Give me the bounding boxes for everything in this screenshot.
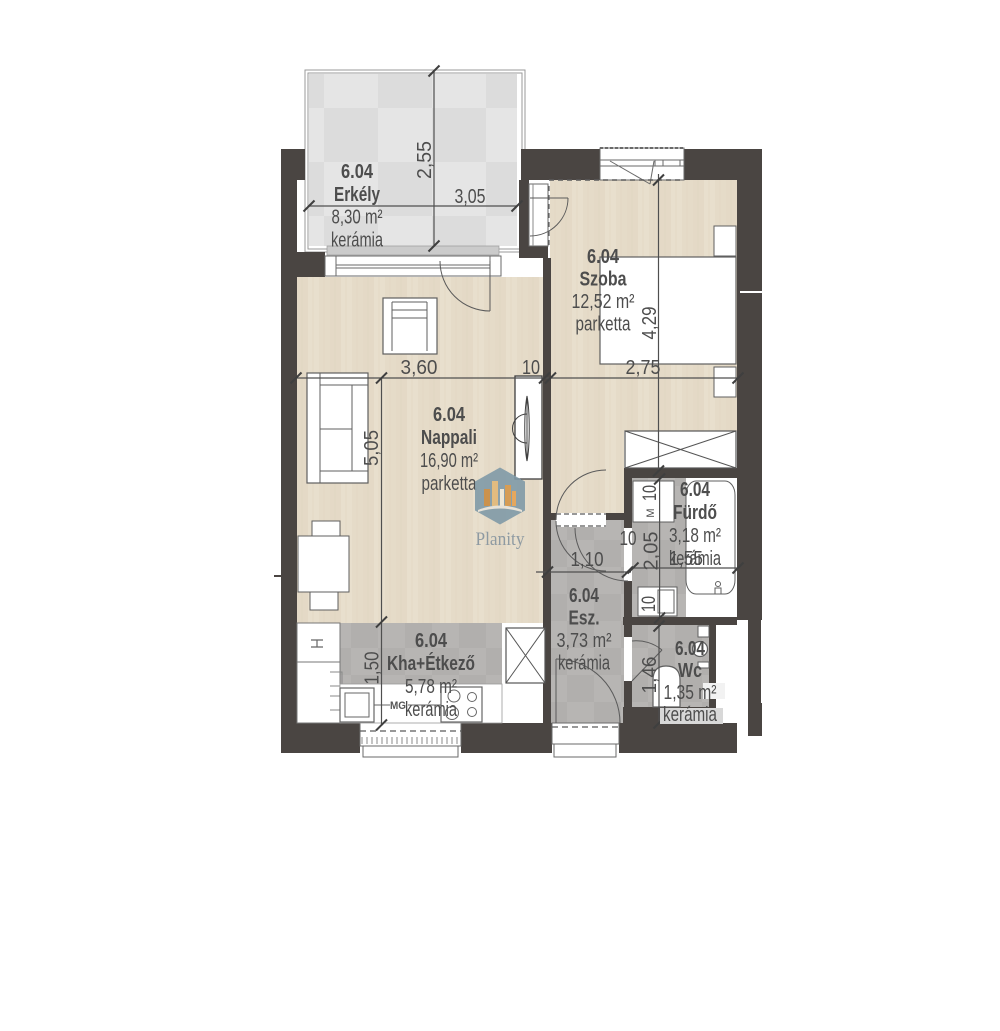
svg-text:2,55: 2,55: [414, 141, 436, 179]
svg-text:kerámia: kerámia: [663, 704, 718, 726]
svg-text:10: 10: [522, 357, 540, 379]
svg-text:3,60: 3,60: [401, 357, 438, 379]
svg-text:MG: MG: [390, 700, 406, 712]
svg-text:Fürdő: Fürdő: [673, 502, 717, 524]
svg-text:12,52 m²: 12,52 m²: [572, 291, 635, 313]
svg-text:3,18 m²: 3,18 m²: [669, 525, 721, 547]
svg-text:5,05: 5,05: [361, 430, 383, 466]
svg-text:6.04: 6.04: [569, 585, 600, 607]
svg-text:5,78 m²: 5,78 m²: [405, 676, 457, 698]
svg-text:Wc: Wc: [678, 660, 702, 682]
svg-text:kerámia: kerámia: [405, 699, 458, 721]
svg-text:3,05: 3,05: [455, 186, 486, 208]
svg-text:parketta: parketta: [422, 473, 478, 495]
svg-text:kerámia: kerámia: [331, 229, 384, 251]
svg-text:2,75: 2,75: [626, 357, 661, 379]
svg-text:1,50: 1,50: [362, 652, 384, 685]
svg-text:Erkély: Erkély: [334, 184, 381, 206]
svg-text:6.04: 6.04: [415, 630, 448, 652]
svg-text:Nappali: Nappali: [421, 427, 477, 449]
svg-text:1,35 m²: 1,35 m²: [664, 682, 717, 704]
svg-text:8,30 m²: 8,30 m²: [332, 207, 383, 229]
svg-text:Szoba: Szoba: [580, 269, 628, 291]
svg-text:6.04: 6.04: [587, 246, 620, 268]
svg-text:1,46: 1,46: [639, 657, 661, 694]
svg-text:16,90 m²: 16,90 m²: [420, 450, 478, 472]
svg-text:6.04: 6.04: [675, 638, 706, 660]
svg-text:Planity: Planity: [476, 529, 525, 550]
svg-text:kerámia: kerámia: [669, 548, 722, 570]
svg-text:parketta: parketta: [576, 314, 632, 336]
svg-text:10: 10: [620, 528, 637, 550]
svg-text:M: M: [645, 508, 657, 517]
svg-text:Esz.: Esz.: [569, 608, 600, 630]
svg-text:6.04: 6.04: [680, 479, 711, 501]
svg-text:Kha+Étkező: Kha+Étkező: [387, 652, 475, 675]
svg-text:2,05: 2,05: [641, 532, 663, 571]
svg-text:3,73 m²: 3,73 m²: [557, 630, 612, 652]
svg-text:4,29: 4,29: [639, 307, 661, 340]
svg-text:6.04: 6.04: [433, 404, 466, 426]
svg-text:10: 10: [639, 596, 660, 612]
svg-text:6.04: 6.04: [341, 161, 374, 183]
svg-text:1,10: 1,10: [571, 549, 604, 571]
svg-text:kerámia: kerámia: [558, 653, 611, 675]
svg-text:10: 10: [640, 485, 661, 501]
